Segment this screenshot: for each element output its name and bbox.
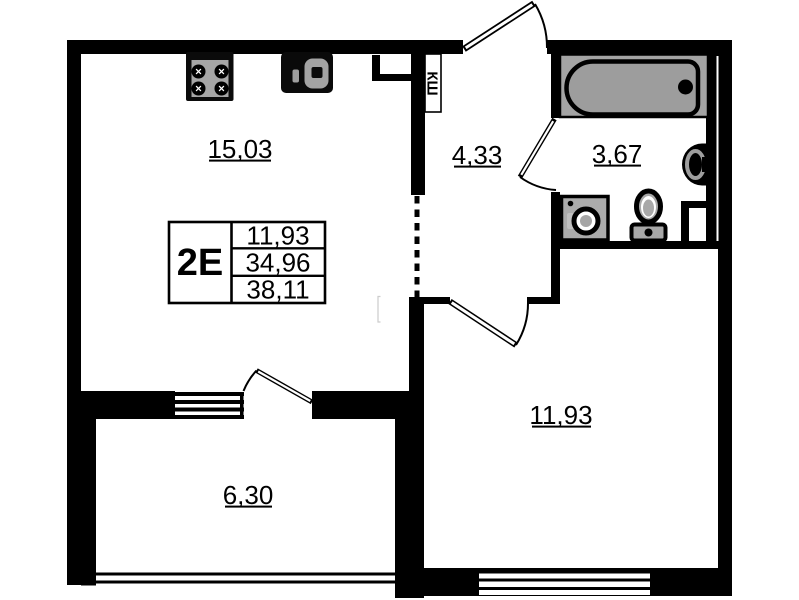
svg-text:11,93: 11,93 (529, 400, 592, 430)
svg-text:3,67: 3,67 (592, 139, 643, 169)
svg-text:6,30: 6,30 (223, 480, 274, 510)
svg-text:34,96: 34,96 (245, 248, 310, 278)
svg-text:11,93: 11,93 (246, 221, 309, 251)
svg-text:КШ: КШ (424, 71, 441, 95)
svg-text:38,11: 38,11 (246, 275, 309, 305)
svg-text:2Е: 2Е (177, 242, 223, 284)
svg-text:15,03: 15,03 (207, 134, 272, 164)
svg-text:4,33: 4,33 (452, 140, 503, 170)
